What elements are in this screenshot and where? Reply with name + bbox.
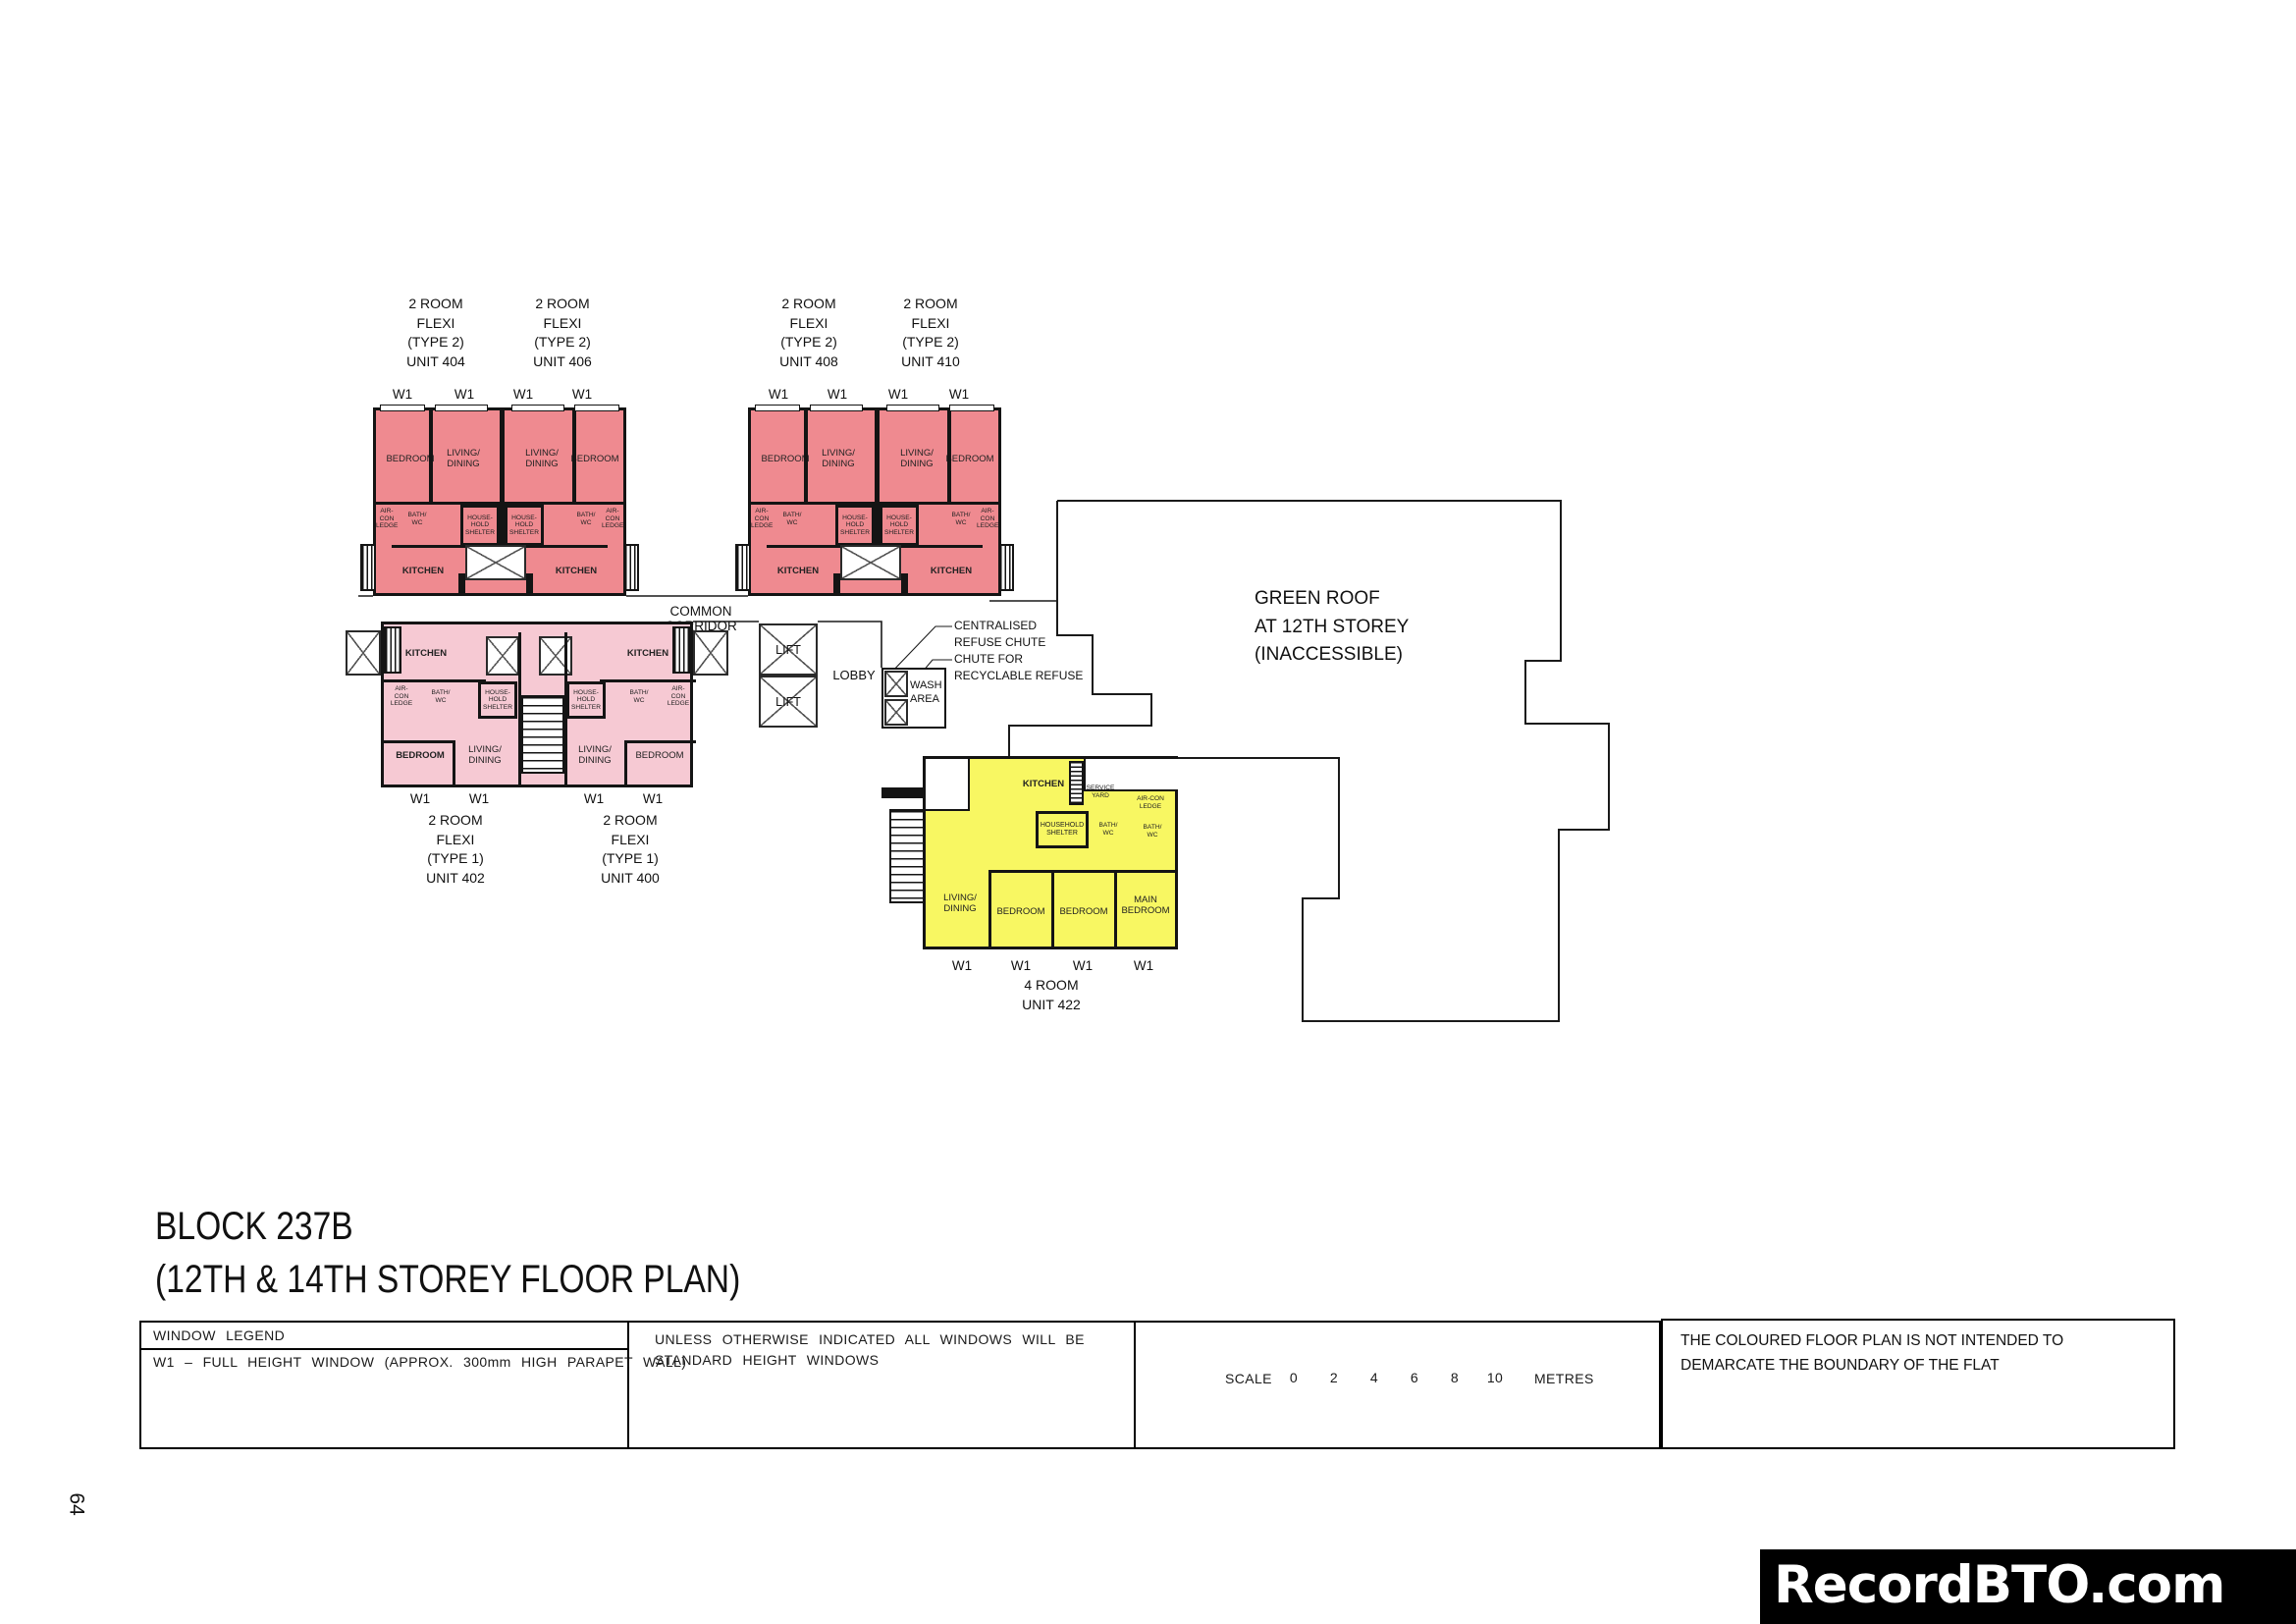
wall — [572, 410, 576, 503]
wall — [881, 787, 923, 798]
lift-shaft: LIFT — [759, 676, 818, 728]
window-marker-w1: W1 — [881, 387, 915, 402]
room-label-bedroom: BEDROOM — [390, 750, 451, 761]
wash-area: WASH AREA — [881, 668, 946, 729]
scale-tick-label: 10 — [1480, 1370, 1510, 1385]
room-label-bedroom: BEDROOM — [992, 906, 1049, 917]
household-shelter: HOUSE- HOLD SHELTER — [566, 681, 606, 719]
room-label-bath-wc: BATH/ WC — [621, 689, 657, 704]
unit-pair-404-406: BEDROOM LIVING/ DINING LIVING/ DINING BE… — [373, 407, 626, 596]
window-marker-w1: W1 — [945, 958, 979, 973]
louvred-window — [360, 544, 376, 591]
window-marker-w1: W1 — [577, 791, 611, 806]
table-divider — [141, 1348, 627, 1350]
table-divider — [1134, 1323, 1136, 1447]
scale-tick-label: 2 — [1319, 1370, 1349, 1385]
room-label-household-shelter: HOUSE- HOLD SHELTER — [571, 689, 601, 712]
window — [886, 405, 939, 411]
window-marker-w1: W1 — [565, 387, 599, 402]
green-roof-note: GREEN ROOF AT 12TH STOREY (INACCESSIBLE) — [1255, 585, 1441, 670]
unit-422: KITCHEN SERVICE YARD AIR-CON LEDGE HOUSE… — [923, 756, 1178, 949]
wall — [833, 573, 840, 595]
unit-408-header: 2 ROOM FLEXI (TYPE 2) UNIT 408 — [755, 295, 863, 371]
lift-label: LIFT — [775, 695, 801, 709]
room-label-aircon-ledge: AIR- CON LEDGE — [751, 508, 773, 530]
unit-422-header: 4 ROOM UNIT 422 — [997, 976, 1105, 1014]
room-label-bath-wc: BATH/ WC — [774, 512, 810, 526]
unit-pair-402-400: KITCHEN KITCHEN AIR- CON LEDGE BATH/ WC … — [381, 622, 693, 787]
wall — [988, 870, 1175, 873]
wall — [453, 740, 455, 787]
wall — [429, 410, 433, 503]
window-marker-w1: W1 — [636, 791, 669, 806]
room-label-household-shelter: HOUSEHOLD SHELTER — [1041, 822, 1084, 837]
window-marker-w1: W1 — [448, 387, 481, 402]
louvred-window — [623, 544, 639, 591]
window-marker-w1: W1 — [1004, 958, 1038, 973]
window — [511, 405, 564, 411]
service-shaft — [486, 636, 519, 676]
room-label-kitchen: KITCHEN — [396, 648, 456, 659]
window — [435, 405, 488, 411]
room-label-kitchen: KITCHEN — [386, 566, 460, 576]
wall — [384, 740, 453, 743]
room-label-bath-wc: BATH/ WC — [400, 512, 435, 526]
disclaimer-text: THE COLOURED FLOOR PLAN IS NOT INTENDED … — [1681, 1328, 2063, 1378]
refuse-chute — [884, 671, 908, 697]
room-label-household-shelter: HOUSE- HOLD SHELTER — [465, 514, 495, 537]
lift-label: LIFT — [775, 643, 801, 657]
room-label-living-dining: LIVING/ DINING — [566, 744, 623, 766]
wall — [804, 410, 808, 503]
window-marker-w1: W1 — [403, 791, 437, 806]
room-label-bath-wc: BATH/ WC — [1134, 824, 1171, 839]
wall — [947, 410, 951, 503]
legend-table: WINDOW LEGEND W1 – FULL HEIGHT WINDOW (A… — [139, 1321, 1661, 1449]
wall — [384, 679, 486, 682]
window-marker-w1: W1 — [386, 387, 419, 402]
room-label-living-dining: LIVING/ DINING — [932, 893, 988, 914]
staircase — [521, 695, 564, 774]
unit-406-header: 2 ROOM FLEXI (TYPE 2) UNIT 406 — [508, 295, 616, 371]
scale-tick-label: 8 — [1440, 1370, 1469, 1385]
household-shelter: HOUSE- HOLD SHELTER — [460, 505, 500, 546]
window — [380, 405, 425, 411]
table-divider — [627, 1323, 629, 1447]
room-label-living-dining: LIVING/ DINING — [886, 448, 947, 469]
room-label-living-dining: LIVING/ DINING — [808, 448, 869, 469]
service-shaft — [346, 630, 381, 676]
service-shaft — [693, 630, 728, 676]
wall — [624, 740, 627, 787]
staircase — [889, 809, 927, 903]
household-shelter: HOUSEHOLD SHELTER — [1036, 811, 1089, 848]
recyclable-refuse-callout: CHUTE FOR RECYCLABLE REFUSE — [954, 651, 1126, 683]
page-number: 64 — [65, 1492, 88, 1515]
lift-shaft: LIFT — [759, 623, 818, 676]
windows-note: UNLESS OTHERWISE INDICATED ALL WINDOWS W… — [655, 1329, 1085, 1371]
room-label-aircon-ledge: AIR- CON LEDGE — [977, 508, 998, 530]
w1-definition: W1 – FULL HEIGHT WINDOW (APPROX. 300mm H… — [153, 1354, 686, 1370]
room-label-aircon-ledge: AIR- CON LEDGE — [390, 685, 413, 708]
page-title: BLOCK 237B (12TH & 14TH STOREY FLOOR PLA… — [155, 1200, 740, 1306]
scale-tick-label: 4 — [1360, 1370, 1389, 1385]
service-shaft — [840, 545, 901, 580]
disclaimer-box: THE COLOURED FLOOR PLAN IS NOT INTENDED … — [1661, 1319, 2175, 1449]
room-label-household-shelter: HOUSE- HOLD SHELTER — [509, 514, 539, 537]
room-label-aircon-ledge: AIR-CON LEDGE — [1124, 795, 1177, 810]
room-label-household-shelter: HOUSE- HOLD SHELTER — [884, 514, 914, 537]
unit-400-header: 2 ROOM FLEXI (TYPE 1) UNIT 400 — [576, 811, 684, 888]
wall — [526, 573, 533, 595]
window-marker-w1: W1 — [942, 387, 976, 402]
room-label-kitchen: KITCHEN — [761, 566, 835, 576]
window-marker-w1: W1 — [1066, 958, 1099, 973]
watermark: RecordBTO.com — [1760, 1549, 2296, 1624]
window — [810, 405, 863, 411]
room-label-household-shelter: HOUSE- HOLD SHELTER — [840, 514, 870, 537]
room-label-aircon-ledge: AIR- CON LEDGE — [376, 508, 398, 530]
room-label-kitchen: KITCHEN — [617, 648, 678, 659]
room-label-bath-wc: BATH/ WC — [423, 689, 458, 704]
scale-unit-label: METRES — [1534, 1371, 1594, 1386]
window-marker-w1: W1 — [1127, 958, 1160, 973]
room-label-bedroom: BEDROOM — [629, 750, 690, 761]
window — [755, 405, 800, 411]
scale-tick-label: 6 — [1400, 1370, 1429, 1385]
wall — [600, 679, 696, 682]
lobby-label: LOBBY — [827, 668, 881, 682]
unit-402-header: 2 ROOM FLEXI (TYPE 1) UNIT 402 — [401, 811, 509, 888]
wall — [627, 740, 696, 743]
refuse-chute-callout: CENTRALISED REFUSE CHUTE — [954, 618, 1101, 650]
window-marker-w1: W1 — [462, 791, 496, 806]
room-label-bath-wc: BATH/ WC — [568, 512, 604, 526]
watermark-text: RecordBTO.com — [1760, 1549, 2296, 1622]
room-label-aircon-ledge: AIR- CON LEDGE — [667, 685, 690, 708]
window — [574, 405, 619, 411]
wall — [901, 573, 908, 595]
household-shelter: HOUSE- HOLD SHELTER — [478, 681, 517, 719]
room-label-living-dining: LIVING/ DINING — [511, 448, 572, 469]
wash-area-label: WASH AREA — [910, 679, 945, 706]
room-label-main-bedroom: MAIN BEDROOM — [1116, 894, 1175, 916]
room-label-bath-wc: BATH/ WC — [1091, 822, 1126, 837]
unit-404-header: 2 ROOM FLEXI (TYPE 2) UNIT 404 — [382, 295, 490, 371]
scale-tick-label: 0 — [1279, 1370, 1308, 1385]
entry-vestibule — [926, 759, 970, 811]
room-label-aircon-ledge: AIR- CON LEDGE — [602, 508, 623, 530]
wall — [1051, 870, 1054, 949]
room-label-kitchen: KITCHEN — [539, 566, 614, 576]
louvred-window — [735, 544, 751, 591]
window-marker-w1: W1 — [762, 387, 795, 402]
household-shelter: HOUSE- HOLD SHELTER — [505, 505, 544, 546]
wall — [458, 573, 465, 595]
louvred-window — [998, 544, 1014, 591]
room-label-kitchen: KITCHEN — [914, 566, 988, 576]
room-label-kitchen: KITCHEN — [1012, 779, 1075, 789]
scale-label: SCALE — [1225, 1371, 1272, 1386]
window-marker-w1: W1 — [821, 387, 854, 402]
room-label-bath-wc: BATH/ WC — [943, 512, 979, 526]
unit-410-header: 2 ROOM FLEXI (TYPE 2) UNIT 410 — [877, 295, 985, 371]
recyclable-refuse-chute — [884, 699, 908, 726]
room-label-living-dining: LIVING/ DINING — [433, 448, 494, 469]
wall — [988, 870, 991, 949]
service-shaft — [465, 545, 526, 580]
household-shelter: HOUSE- HOLD SHELTER — [880, 505, 919, 546]
household-shelter: HOUSE- HOLD SHELTER — [835, 505, 875, 546]
window-legend-title: WINDOW LEGEND — [153, 1327, 285, 1343]
unit-pair-408-410: BEDROOM LIVING/ DINING LIVING/ DINING BE… — [748, 407, 1001, 596]
room-label-living-dining: LIVING/ DINING — [456, 744, 513, 766]
floor-plan-page: 2 ROOM FLEXI (TYPE 2) UNIT 404 2 ROOM FL… — [0, 0, 2296, 1624]
window-marker-w1: W1 — [507, 387, 540, 402]
room-label-service-yard: SERVICE YARD — [1081, 785, 1120, 799]
room-label-bedroom: BEDROOM — [1055, 906, 1112, 917]
room-label-household-shelter: HOUSE- HOLD SHELTER — [483, 689, 512, 712]
window — [949, 405, 994, 411]
